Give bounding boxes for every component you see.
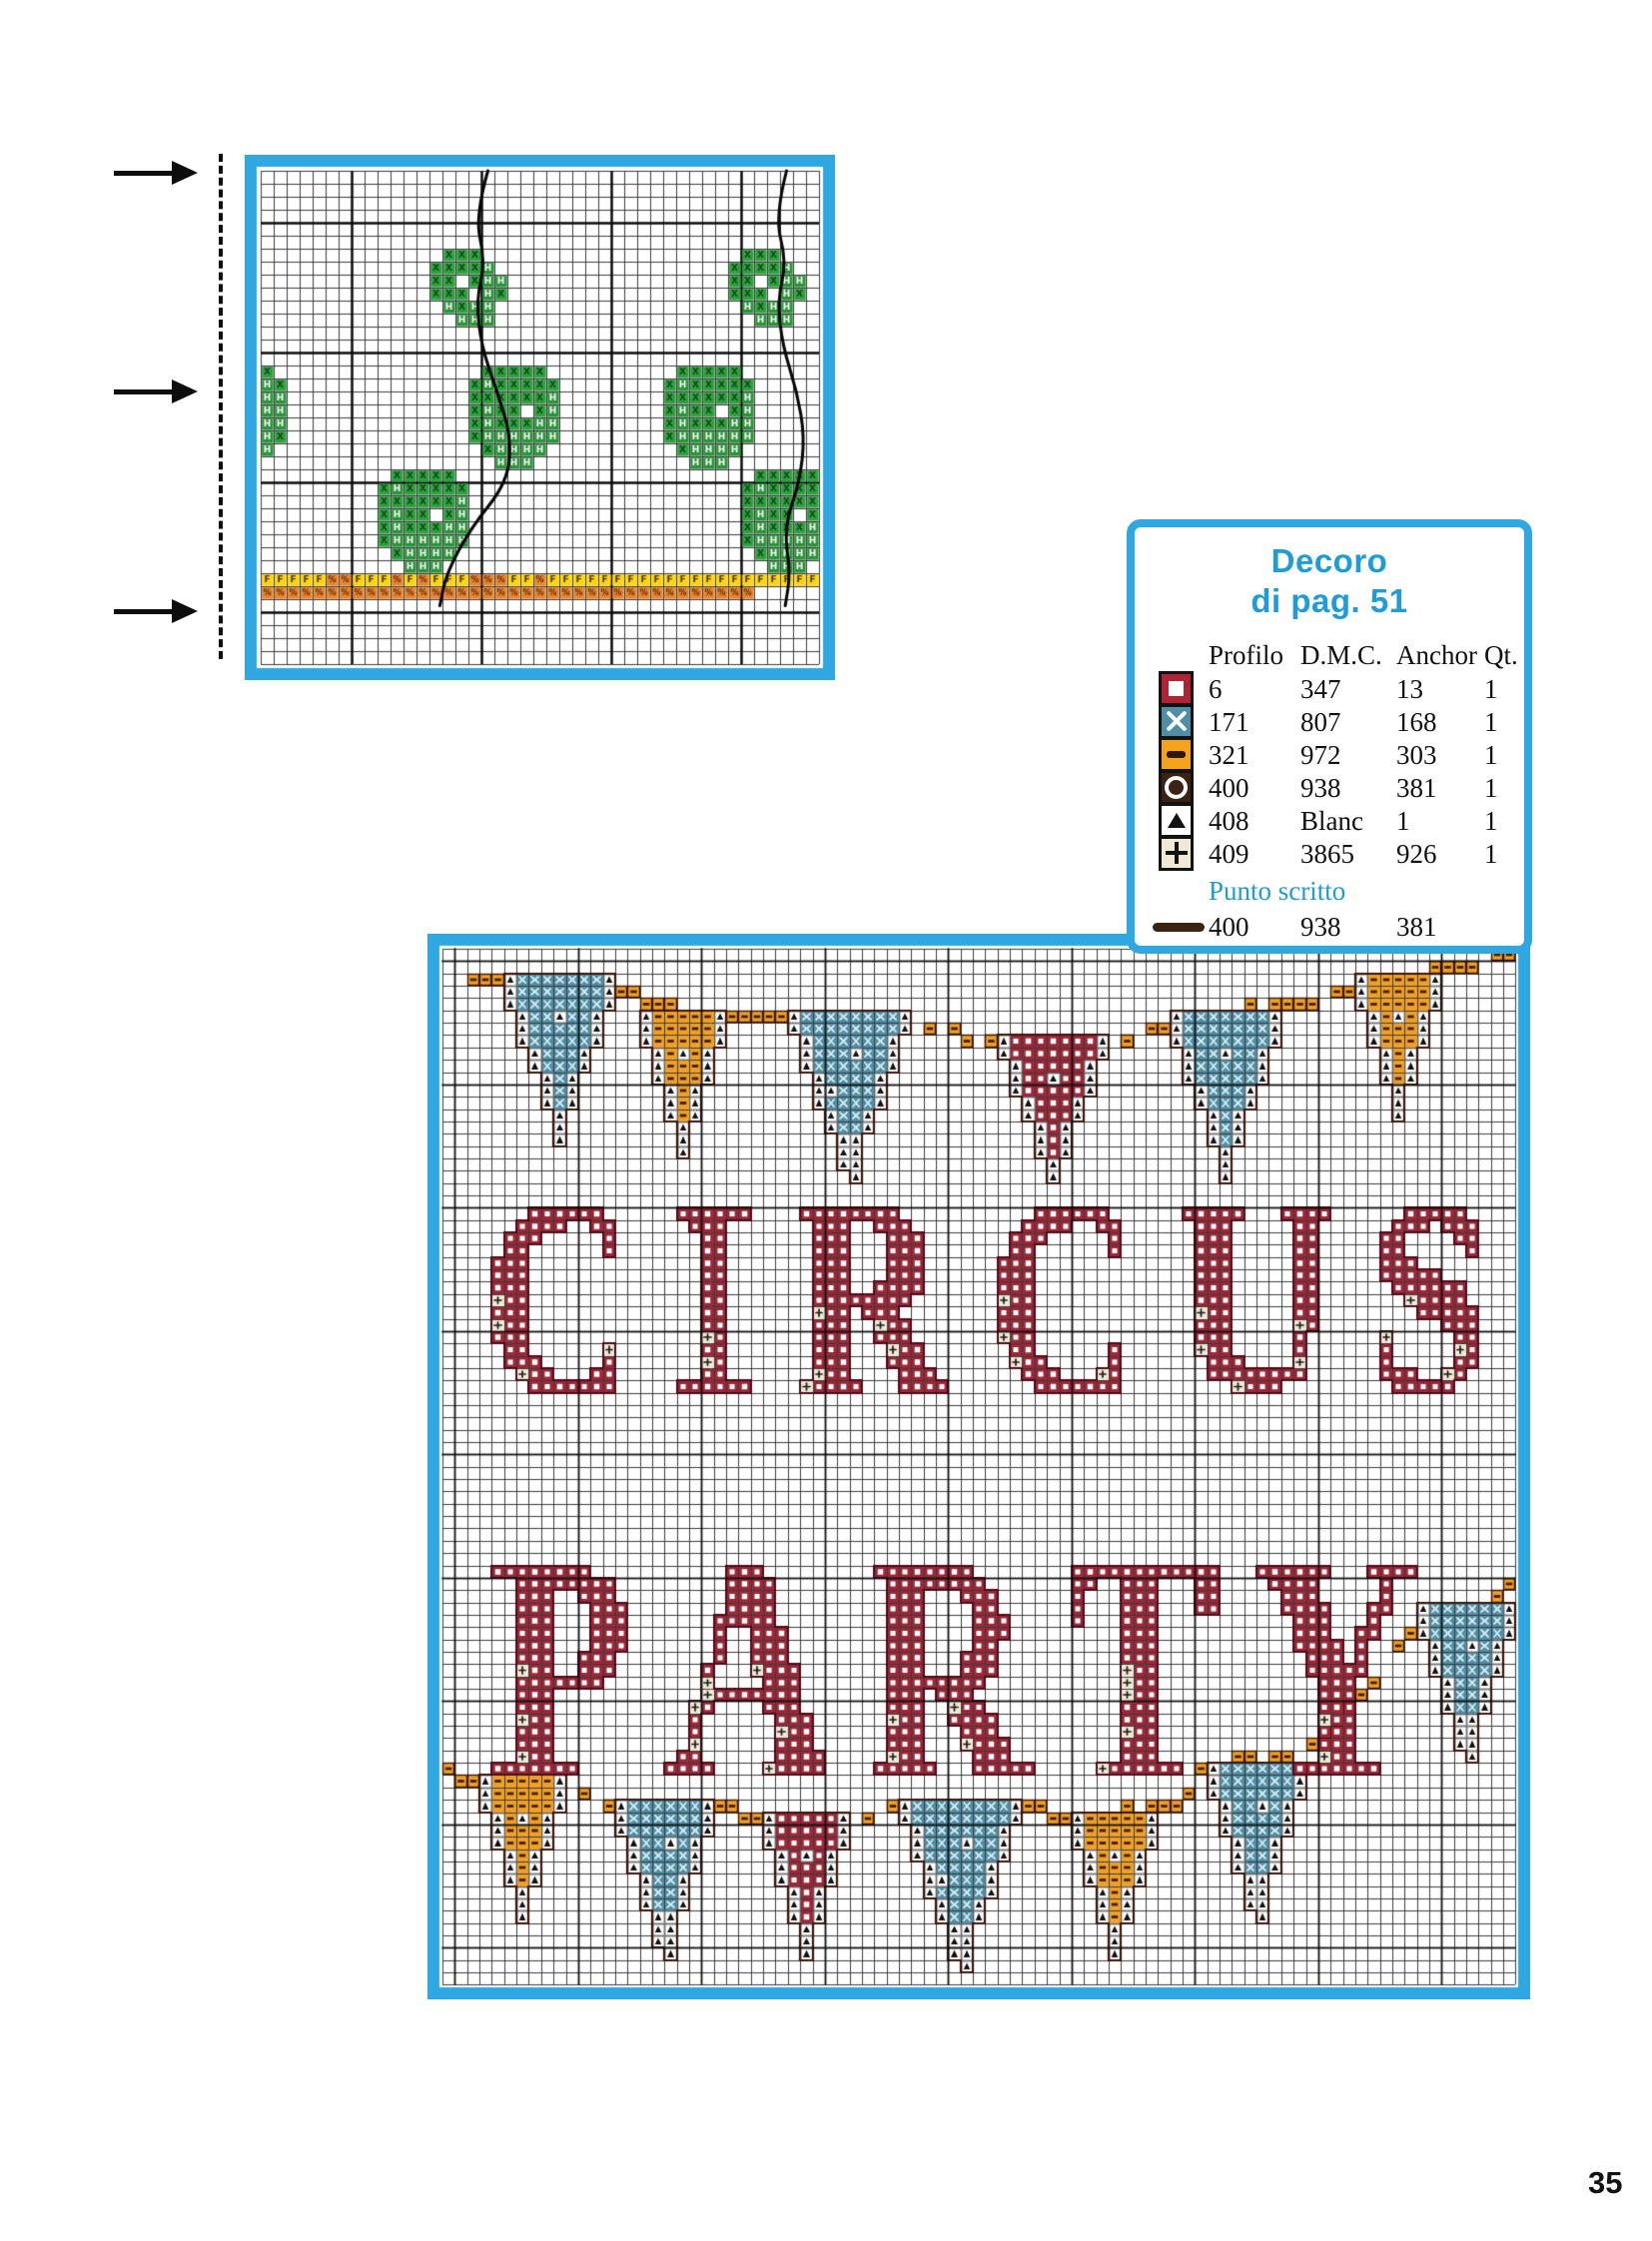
- legend-cell-dmc: Blanc: [1300, 806, 1396, 837]
- triangle-white-symbol-icon: [1159, 803, 1194, 838]
- legend-cell-dmc: 347: [1300, 674, 1396, 705]
- right-arrow-icon: [114, 599, 200, 623]
- arrow-shaft: [114, 171, 178, 176]
- legend-cell-qt: 1: [1484, 839, 1514, 870]
- backstitch-cell-anchor: 381: [1396, 912, 1484, 943]
- arrow-head: [172, 161, 198, 185]
- legend-row: 1718071681: [1159, 706, 1524, 739]
- legend-cell-dmc: 938: [1300, 773, 1396, 804]
- legend-cell-profilo: 321: [1209, 740, 1300, 771]
- symbol-glyph: [1167, 751, 1186, 758]
- right-arrow-icon: [114, 161, 200, 185]
- legend-header-row: Profilo D.M.C. Anchor Qt.: [1159, 637, 1524, 673]
- symbol-glyph: [1165, 776, 1188, 799]
- legend-cell-anchor: 303: [1396, 740, 1484, 771]
- stitch-chart-small-canvas: [245, 155, 835, 680]
- legend-row: 40938659261: [1159, 838, 1524, 871]
- arrow-head: [172, 379, 198, 403]
- legend-cell-anchor: 926: [1396, 839, 1484, 870]
- legend-row: 6347131: [1159, 673, 1524, 706]
- legend-cell-anchor: 381: [1396, 773, 1484, 804]
- legend-cell-profilo: 6: [1209, 674, 1300, 705]
- legend-cell-anchor: 13: [1396, 674, 1484, 705]
- legend-title: Decoro di pag. 51: [1135, 541, 1524, 621]
- legend-cell-dmc: 972: [1300, 740, 1396, 771]
- square-red-symbol-icon: [1159, 671, 1194, 706]
- plus-cream-symbol-icon: [1159, 836, 1194, 871]
- legend-cell-profilo: 400: [1209, 773, 1300, 804]
- legend-row: 4009383811: [1159, 772, 1524, 805]
- symbol-glyph: [1169, 681, 1184, 696]
- legend-row: 408Blanc11: [1159, 805, 1524, 838]
- legend-cell-anchor: 1: [1396, 806, 1484, 837]
- right-arrow-icon: [114, 379, 200, 403]
- backstitch-cell-profilo: 400: [1209, 912, 1300, 943]
- x-teal-symbol-icon: [1159, 704, 1194, 739]
- legend-title-line2: di pag. 51: [1135, 581, 1524, 621]
- dash-orange-symbol-icon: [1159, 737, 1194, 772]
- circle-brown-symbol-icon: [1159, 770, 1194, 805]
- legend-cell-qt: 1: [1484, 740, 1514, 771]
- legend-cell-qt: 1: [1484, 707, 1514, 738]
- arrow-head: [172, 599, 198, 623]
- fold-dashed-line: [219, 154, 223, 659]
- legend-cell-profilo: 408: [1209, 806, 1300, 837]
- arrow-shaft: [114, 389, 178, 394]
- punto-scritto-row: Punto scritto: [1159, 871, 1524, 911]
- legend-header-qt: Qt.: [1484, 640, 1514, 671]
- page-number: 35: [1588, 2165, 1622, 2201]
- backstitch-row: 400938381: [1159, 911, 1524, 944]
- legend-cell-anchor: 168: [1396, 707, 1484, 738]
- arrow-shaft: [114, 609, 178, 614]
- punto-scritto-label: Punto scritto: [1209, 876, 1514, 907]
- legend-cell-qt: 1: [1484, 773, 1514, 804]
- legend-header-dmc: D.M.C.: [1300, 640, 1396, 671]
- legend-cell-dmc: 3865: [1300, 839, 1396, 870]
- legend-title-line1: Decoro: [1135, 541, 1524, 581]
- legend-header-profilo: Profilo: [1209, 640, 1300, 671]
- backstitch-values-row: 400938381: [1159, 911, 1524, 944]
- backstitch-cell-dmc: 938: [1300, 912, 1396, 943]
- legend-row: 3219723031: [1159, 739, 1524, 772]
- legend-rows: 6347131171807168132197230314009383811408…: [1159, 673, 1524, 871]
- legend-cell-profilo: 409: [1209, 839, 1300, 870]
- legend-cell-dmc: 807: [1300, 707, 1396, 738]
- legend-header-anchor: Anchor: [1396, 640, 1484, 671]
- symbol-glyph: [1168, 813, 1186, 828]
- legend-table: Profilo D.M.C. Anchor Qt. 63471311718071…: [1159, 637, 1524, 944]
- stitch-chart-main-canvas: [427, 934, 1530, 1999]
- legend-cell-profilo: 171: [1209, 707, 1300, 738]
- legend-cell-qt: 1: [1484, 674, 1514, 705]
- backstitch-line-icon: [1153, 923, 1205, 932]
- legend-cell-qt: 1: [1484, 806, 1514, 837]
- symbol-glyph: [1166, 851, 1188, 855]
- legend-panel: Decoro di pag. 51 Profilo D.M.C. Anchor …: [1127, 519, 1532, 954]
- magazine-page: Decoro di pag. 51 Profilo D.M.C. Anchor …: [0, 0, 1652, 2241]
